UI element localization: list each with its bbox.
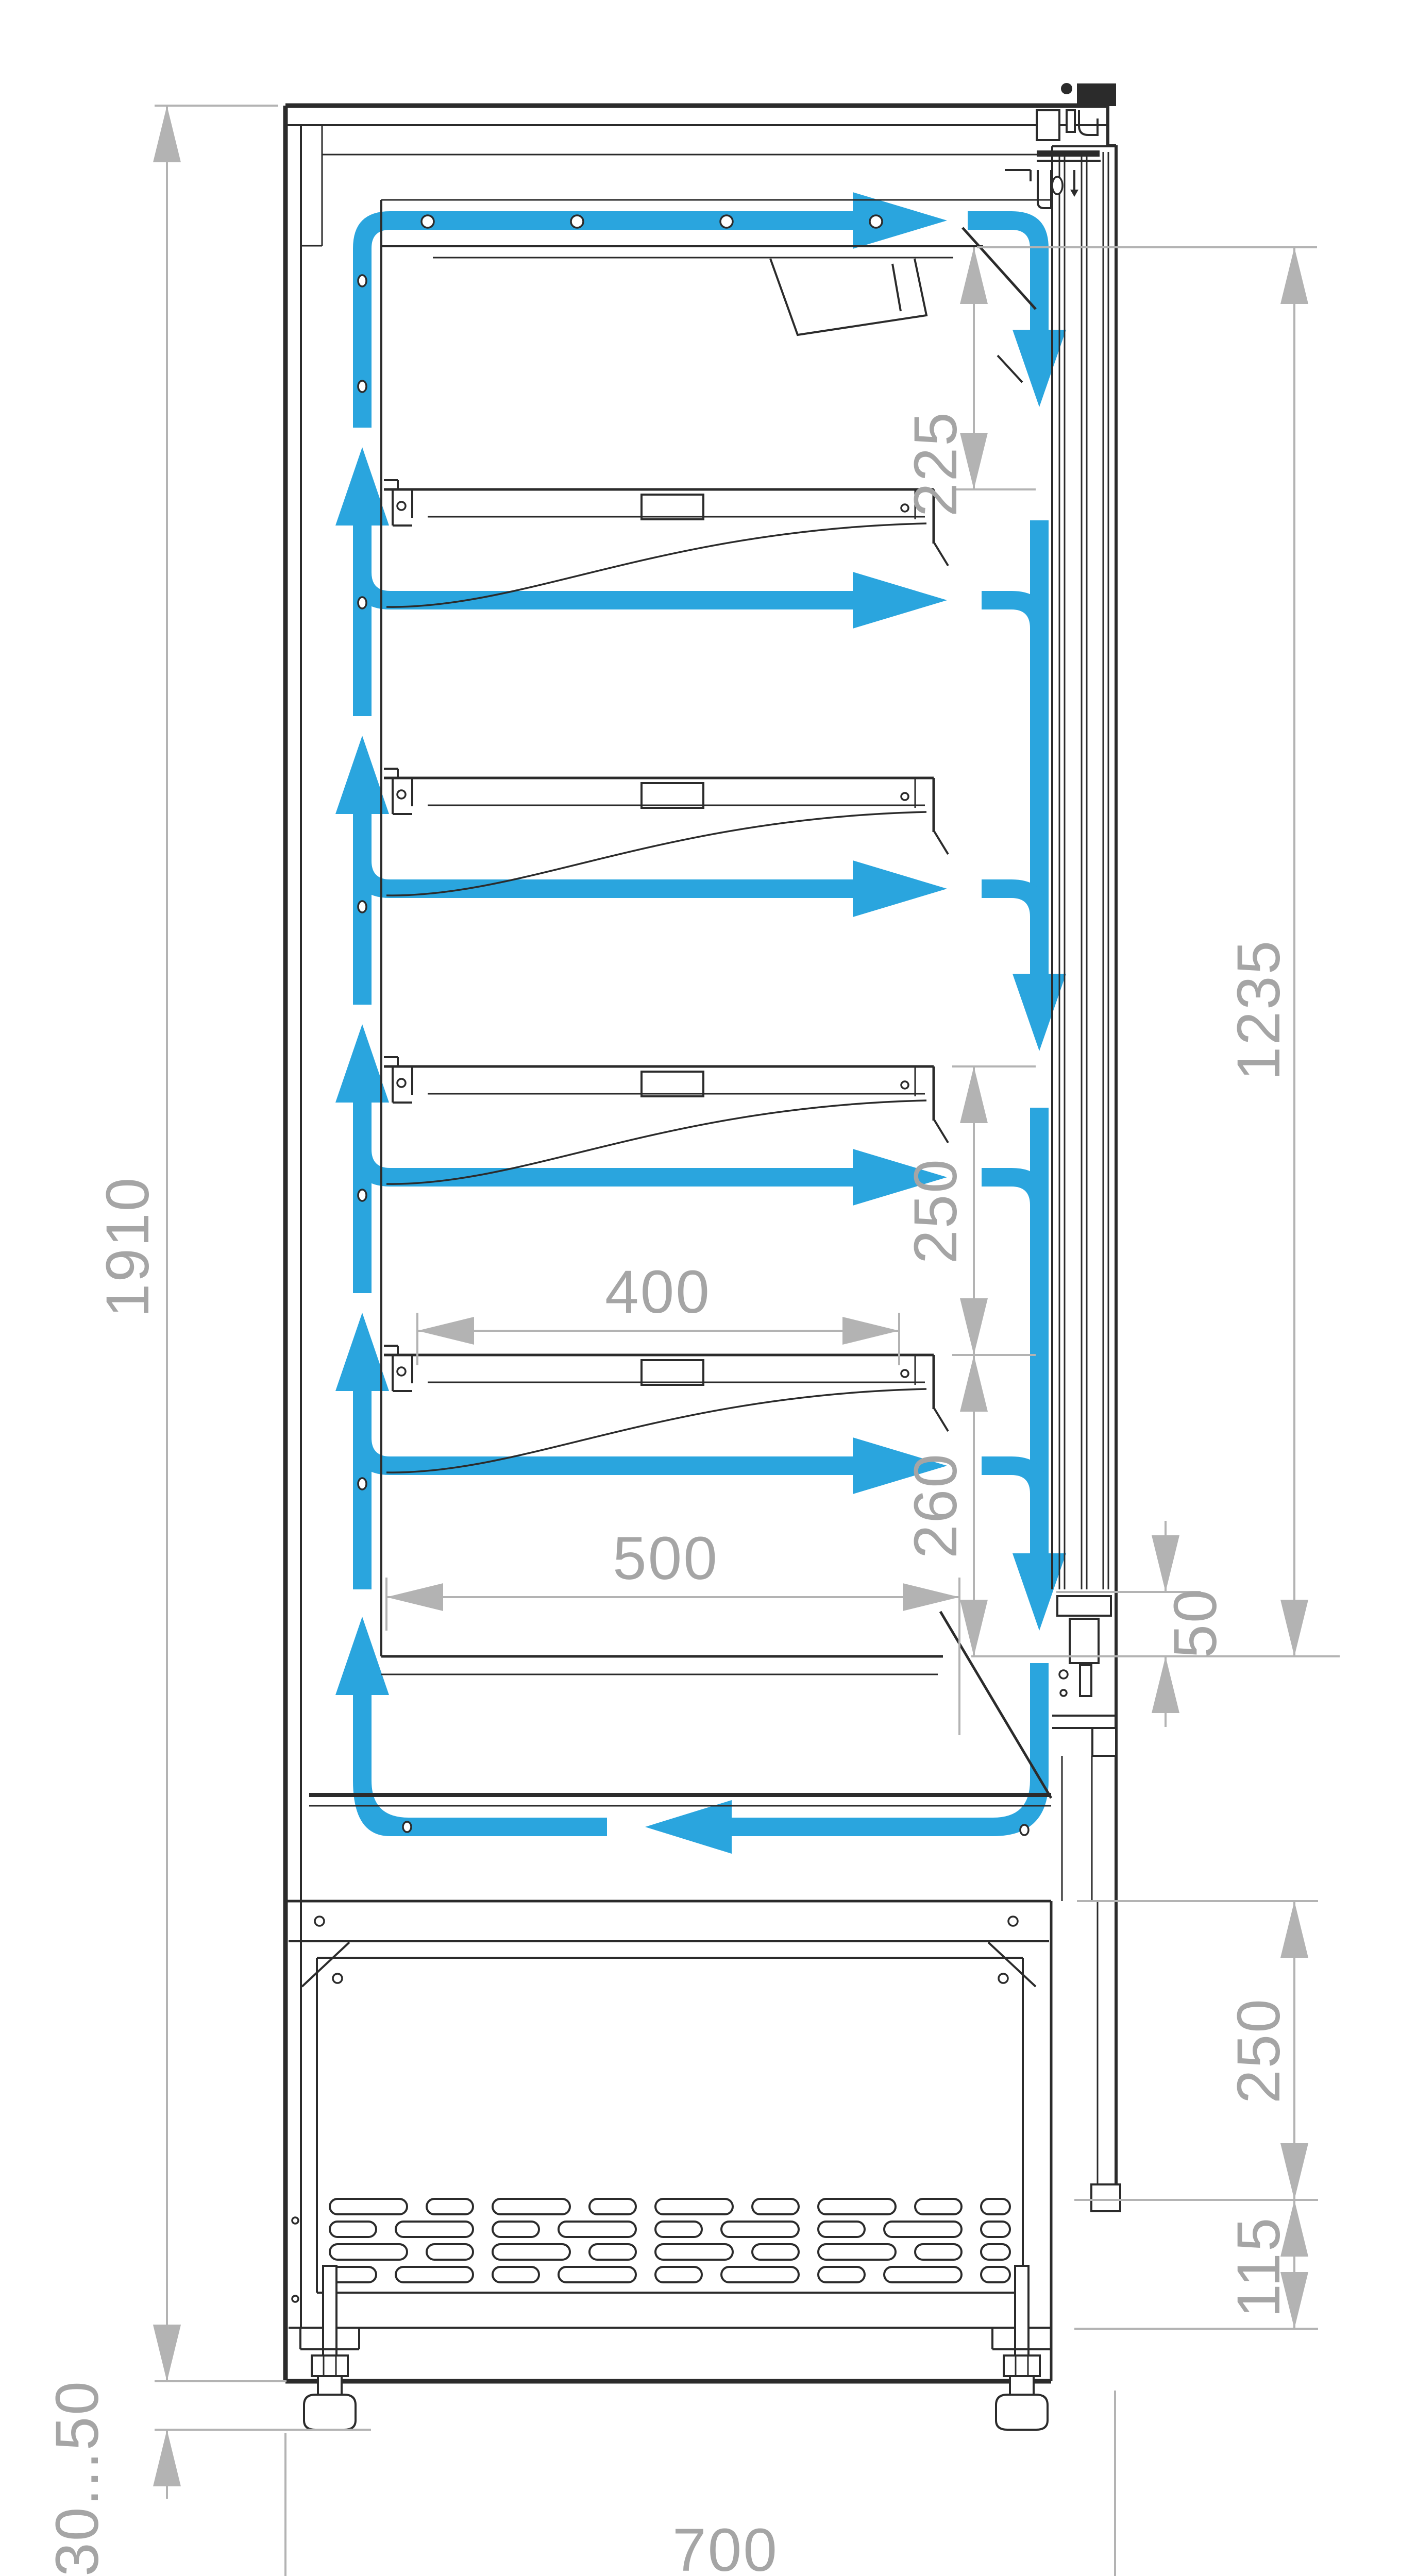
dim-arrow-up-icon — [960, 1066, 988, 1123]
dim-arrow-right-icon — [903, 1583, 959, 1611]
dim-base-height: 250 — [1074, 1901, 1318, 2200]
dim-upper-shelf-depth: 400 — [417, 1258, 899, 1365]
dim-arrow-right-icon — [842, 1317, 899, 1345]
corner-brace — [988, 1942, 1036, 1987]
top-canopy — [285, 106, 1108, 200]
dim-arrow-down-icon — [1280, 1600, 1308, 1656]
dim-top-gap: 225 — [902, 247, 1317, 517]
dim-return-gap: 50 — [971, 1521, 1340, 1727]
dim-label: 700 — [672, 2516, 779, 2576]
dim-arrow-down-icon — [153, 2325, 181, 2381]
door-frame-foot-block — [1091, 2184, 1120, 2211]
dim-label: 30...50 — [43, 2380, 111, 2576]
dim-label: 260 — [902, 1452, 970, 1558]
dim-display-opening: 1235 — [1225, 247, 1308, 1656]
top-duct-flow — [410, 192, 1049, 289]
dim-overall-height: 1910 — [94, 106, 286, 2381]
dim-label: 115 — [1225, 2216, 1293, 2317]
shelf-2 — [384, 769, 948, 854]
dim-arrow-up-icon — [1152, 1656, 1179, 1713]
adjustable-foot-right — [992, 2266, 1051, 2430]
dim-arrow-left-icon — [417, 1317, 474, 1345]
shelf-4 — [384, 1346, 948, 1431]
dim-arrow-up-icon — [960, 1355, 988, 1412]
dim-label: 250 — [902, 1158, 970, 1264]
dim-overall-depth: 700 — [285, 2391, 1115, 2576]
shelf-1 — [384, 480, 948, 566]
machine-base — [285, 1901, 1120, 2381]
shelf-3 — [384, 1057, 948, 1143]
dim-label: 500 — [613, 1524, 719, 1592]
top-duct-assembly — [381, 228, 1036, 382]
dim-grille-height: 115 — [1074, 2200, 1318, 2329]
dim-arrow-down-icon — [960, 1298, 988, 1355]
dim-arrow-down-icon — [960, 1600, 988, 1656]
dim-label: 1910 — [94, 1176, 162, 1318]
left-arrowhead-icon — [645, 1800, 732, 1854]
dim-label: 50 — [1161, 1587, 1229, 1658]
ventilation-grille — [330, 2199, 1010, 2282]
dim-arrow-up-icon — [1280, 1901, 1308, 1958]
dim-label: 1235 — [1225, 939, 1293, 1081]
cabinet-structure — [285, 83, 1120, 2430]
diagram-canvas: 1910 225 1235 250 — [0, 0, 1417, 2576]
down-arrowhead-icon — [1013, 974, 1066, 1051]
dim-arrow-down-icon — [1280, 2143, 1308, 2200]
down-arrowhead-icon — [1013, 330, 1066, 407]
bottom-return-flow — [353, 1762, 1049, 1854]
dim-shelf-to-deck: 260 — [902, 1355, 988, 1656]
dim-foot-adjustment: 30...50 — [43, 2313, 371, 2576]
shelf-flow — [353, 840, 1049, 948]
dim-arrow-left-icon — [386, 1583, 443, 1611]
rear-riser-flow — [335, 211, 410, 1767]
door-bottom-hinge — [1052, 1596, 1116, 1901]
dim-arrow-up-icon — [1280, 247, 1308, 304]
bottom-deck — [309, 1612, 1051, 1835]
air-curtain-flow — [1013, 289, 1066, 1767]
dim-label: 250 — [1225, 1997, 1293, 2104]
dim-arrow-up-icon — [960, 247, 988, 304]
dim-shelf-spacing: 250 — [902, 1066, 1036, 1355]
dim-arrow-up-icon — [153, 106, 181, 162]
shelf-flow — [353, 551, 1049, 659]
dim-arrow-down-icon — [1152, 1535, 1179, 1592]
dim-deck-depth: 500 — [386, 1524, 959, 1735]
adjustable-foot-left — [300, 2266, 359, 2430]
dim-label: 400 — [605, 1258, 711, 1326]
dim-arrow-up-icon — [153, 2430, 181, 2486]
fan-housing — [770, 259, 926, 335]
dim-label: 225 — [902, 411, 970, 517]
